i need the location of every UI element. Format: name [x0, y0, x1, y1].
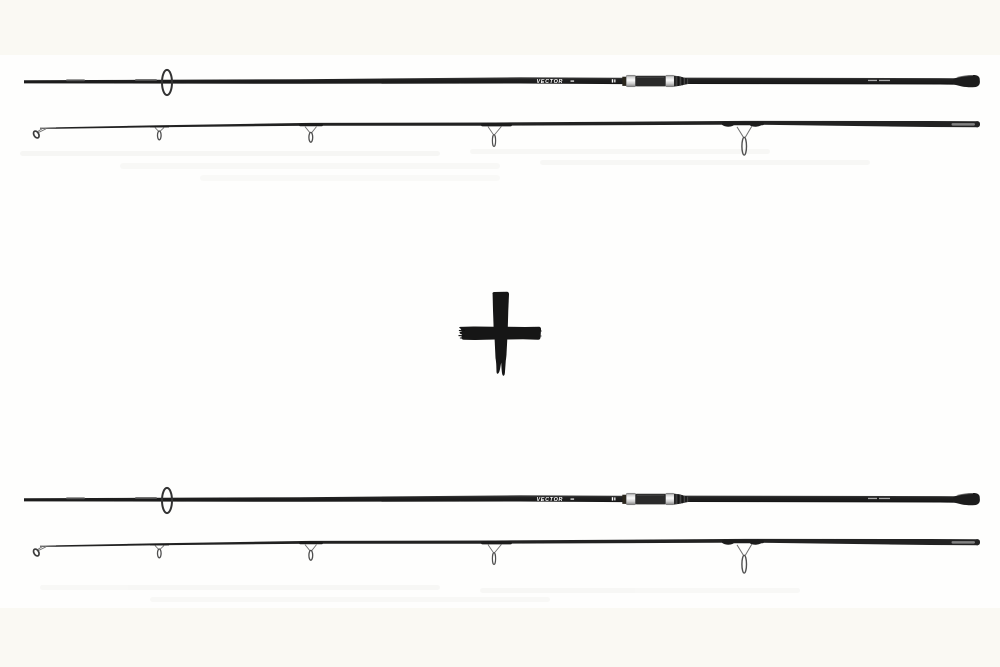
svg-text:VECTOR: VECTOR [537, 497, 564, 503]
svg-text:VECTOR: VECTOR [537, 79, 564, 85]
